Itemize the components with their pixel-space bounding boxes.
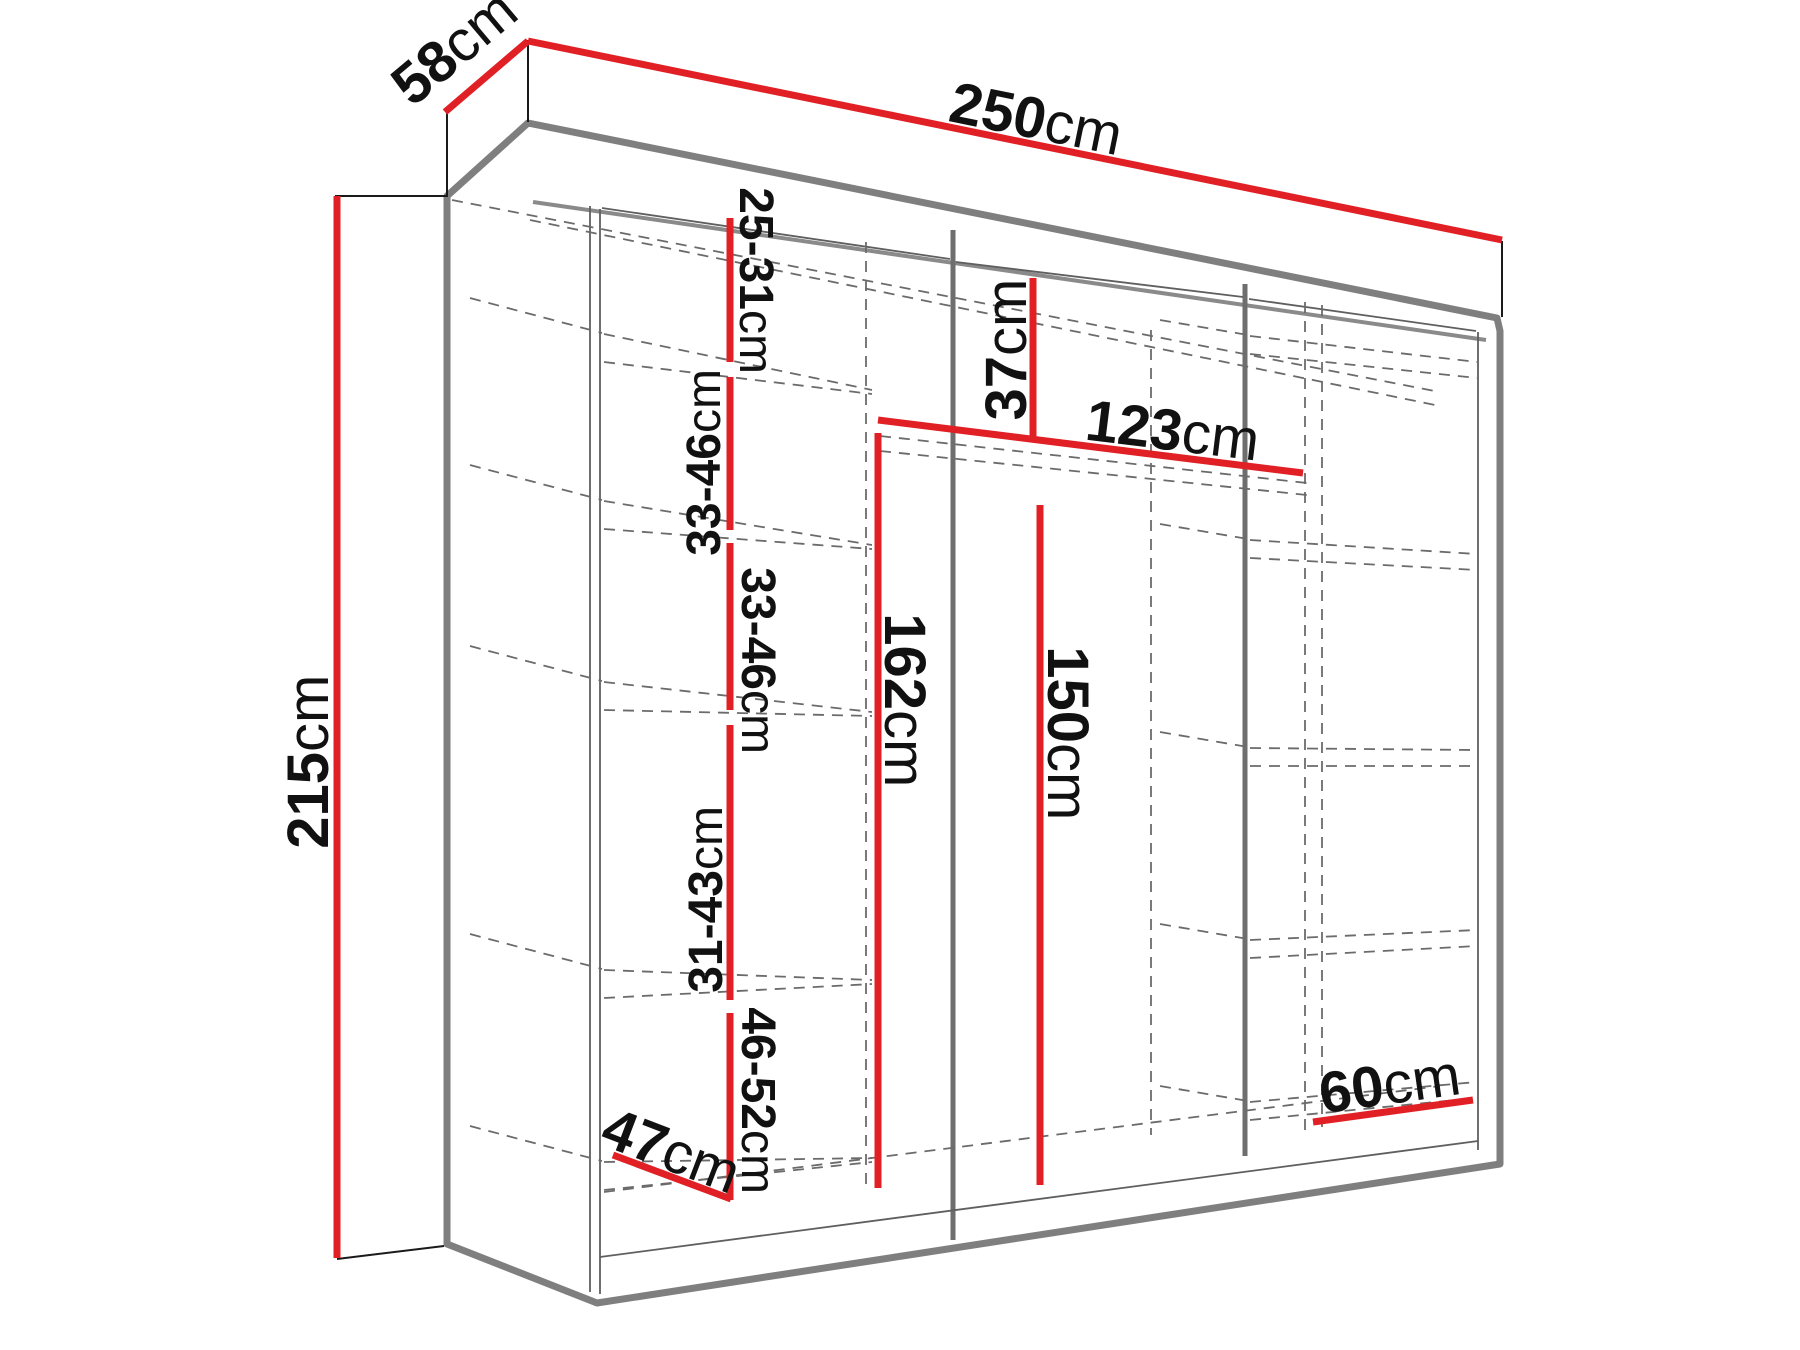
dim-hang-right-label: 150 cm xyxy=(1035,646,1100,820)
hang-left-value: 162 xyxy=(872,613,937,710)
shelf-width-unit: cm xyxy=(1379,1042,1465,1117)
width-unit: cm xyxy=(1039,89,1128,168)
hidden-edges xyxy=(452,200,1477,1192)
gap-lower-unit: cm xyxy=(680,806,733,870)
rail-width-value: 123 xyxy=(1082,388,1186,464)
dim-gap-middle-label: 33-46 cm xyxy=(731,567,784,754)
hang-right-unit: cm xyxy=(1035,743,1100,820)
wardrobe-dimension-diagram: 58 cm 250 cm 215 cm 25-31 cm 33-46 cm 33… xyxy=(0,0,1800,1350)
gap-bottom-value: 46-52 xyxy=(731,1007,784,1130)
top-clearance-value: 37 xyxy=(974,356,1039,421)
dim-gap-lower-label: 31-43 cm xyxy=(680,806,733,993)
gap-upper-unit: cm xyxy=(678,369,731,433)
gap-top-unit: cm xyxy=(729,310,782,374)
rail-width-unit: cm xyxy=(1178,400,1263,474)
dim-gap-top-label: 25-31 cm xyxy=(729,187,782,374)
gap-middle-value: 33-46 xyxy=(731,567,784,690)
dim-gap-upper-label: 33-46 cm xyxy=(678,369,731,556)
gap-lower-value: 31-43 xyxy=(680,870,733,993)
top-clearance-unit: cm xyxy=(974,279,1039,356)
dim-shelf-depth-label: 47 cm xyxy=(593,1095,749,1207)
dim-shelf-width-label: 60 cm xyxy=(1315,1042,1465,1126)
dim-width-label: 250 cm xyxy=(944,70,1128,168)
gap-upper-value: 33-46 xyxy=(678,433,731,556)
hang-right-value: 150 xyxy=(1035,646,1100,743)
left-shelves xyxy=(470,298,872,1190)
dim-top-clearance-label: 37 cm xyxy=(974,279,1039,421)
gap-middle-unit: cm xyxy=(731,690,784,754)
width-value: 250 xyxy=(944,70,1052,153)
hang-left-unit: cm xyxy=(872,710,937,787)
height-unit: cm xyxy=(276,675,341,752)
dim-height-label: 215 cm xyxy=(276,675,341,849)
gap-top-value: 25-31 xyxy=(729,187,782,310)
diagram-canvas: 58 cm 250 cm 215 cm 25-31 cm 33-46 cm 33… xyxy=(0,0,1800,1350)
height-value: 215 xyxy=(276,752,341,849)
dim-hang-left-label: 162 cm xyxy=(872,613,937,787)
shelf-width-value: 60 xyxy=(1315,1053,1388,1126)
